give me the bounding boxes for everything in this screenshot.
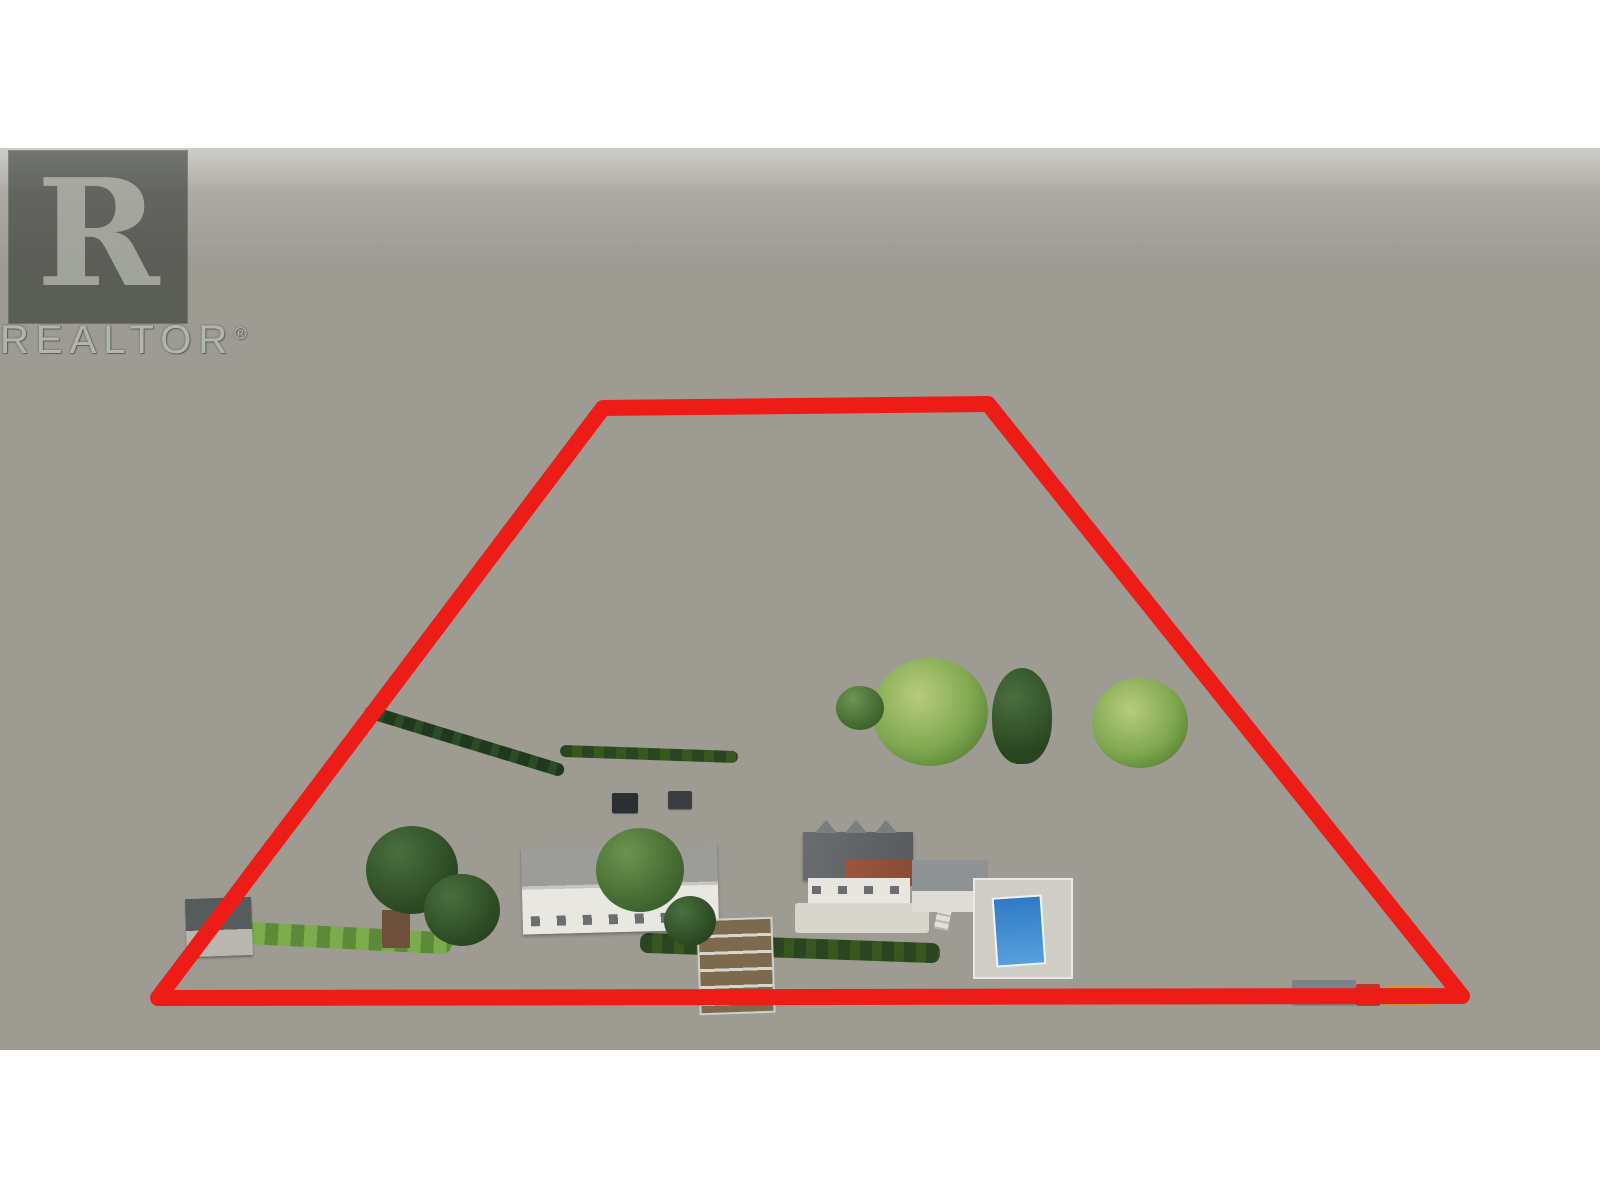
realtor-brand: REALTOR <box>0 318 234 362</box>
photo-area <box>0 148 1600 1050</box>
realtor-watermark-text: REALTOR® <box>0 318 230 363</box>
aerial-listing-photo: R REALTOR® <box>0 0 1600 1200</box>
property-boundary <box>158 404 1462 998</box>
realtor-watermark-box: R <box>8 150 188 324</box>
boundary-overlay <box>0 148 1600 1050</box>
realtor-logo-r: R <box>37 159 160 307</box>
registered-mark: ® <box>234 324 247 343</box>
